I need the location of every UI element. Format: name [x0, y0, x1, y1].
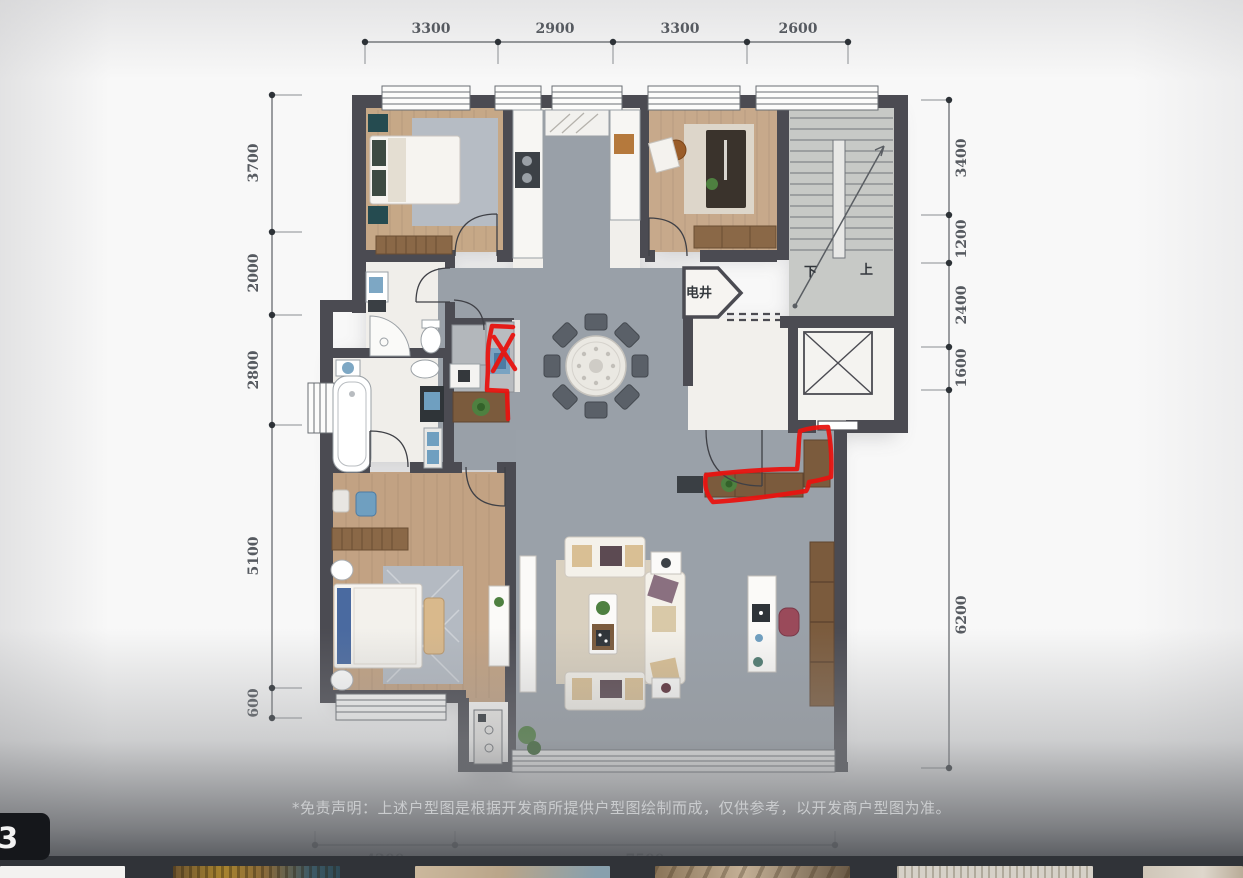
- cabinet: [694, 226, 776, 248]
- thumbnail-interior-photo[interactable]: [655, 866, 850, 878]
- desk-chair: [779, 608, 799, 636]
- dim-left-1: 3700: [246, 143, 262, 182]
- stairs-up-label: 上: [860, 263, 873, 278]
- kitchen-counter: [610, 110, 640, 220]
- shaft-label: 电井: [686, 285, 712, 301]
- sink: [411, 360, 439, 378]
- nightstand: [368, 206, 388, 224]
- nightstand: [368, 114, 388, 132]
- dim-right-5: 6200: [954, 595, 970, 634]
- floor-plan-canvas: 电井 下 上: [0, 0, 1243, 878]
- desk: [748, 576, 776, 672]
- shelving-unit: [810, 542, 834, 706]
- dim-top-4: 2600: [779, 21, 818, 37]
- bookshelf: [332, 528, 408, 550]
- bench: [424, 598, 444, 654]
- thumbnail-interior-photo[interactable]: [1143, 866, 1243, 878]
- dim-left-2: 2000: [246, 253, 262, 292]
- corner-badge: 3: [0, 813, 50, 860]
- badge-label: 3: [0, 821, 50, 855]
- dim-right-1: 3400: [954, 138, 970, 177]
- video-frame: 电井 下 上: [0, 0, 1243, 878]
- dim-right-3: 2400: [954, 285, 970, 324]
- thumbnail-interior-photo[interactable]: [897, 866, 1093, 878]
- dim-top-2: 2900: [536, 21, 575, 37]
- dim-right-4: 1600: [954, 348, 970, 387]
- stairs-down-label: 下: [804, 265, 817, 280]
- armchair: [356, 492, 376, 516]
- disclaimer-text: *免责声明：上述户型图是根据开发商所提供户型图绘制而成，仅供参考，以开发商户型图…: [0, 797, 1243, 818]
- thumbnail-floor-plan[interactable]: [0, 866, 125, 878]
- nightstand: [331, 560, 353, 580]
- electrical-shaft: 电井: [684, 268, 780, 320]
- toilet: [421, 327, 441, 353]
- thumbnail-interior-photo[interactable]: [173, 866, 340, 878]
- dresser: [376, 236, 452, 254]
- dim-top-3: 3300: [661, 21, 700, 37]
- nightstand: [331, 670, 353, 690]
- dim-left-5: 600: [246, 688, 262, 717]
- thumbnail-interior-photo[interactable]: [415, 866, 610, 878]
- dim-left-3: 2800: [246, 350, 262, 389]
- dim-right-2: 1200: [954, 219, 970, 258]
- tv-unit: [520, 556, 536, 692]
- dim-left-4: 5100: [246, 536, 262, 575]
- dim-top-1: 3300: [412, 21, 451, 37]
